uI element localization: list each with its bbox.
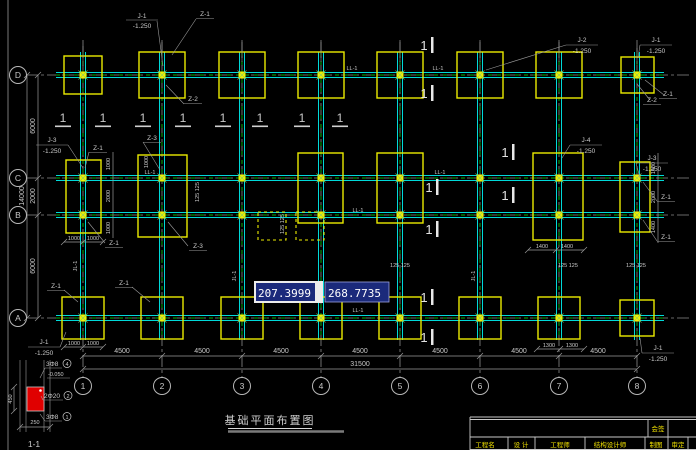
tag-z1: Z-1 <box>51 283 61 290</box>
dim-1300: 1300 <box>543 343 555 349</box>
coordinate-x-value[interactable]: 207.3999 <box>258 287 311 300</box>
dim-bay: 4500 <box>432 348 448 355</box>
title-block-cell: 工程名 <box>475 440 495 449</box>
title-block-cell: 结构设计师 <box>594 440 627 449</box>
tag-j1: J-1 <box>653 345 662 352</box>
mark-one: 1 <box>220 111 227 125</box>
tag-elevation: -1.250 <box>577 148 596 155</box>
tag-jl1: JL-1 <box>73 261 79 272</box>
title-block-cell: 审定 <box>672 440 686 449</box>
dim-1000: 1000 <box>106 158 112 170</box>
axis-col-label: 5 <box>398 381 403 391</box>
tag-j3: J-3 <box>647 155 656 162</box>
dim-1400: 1400 <box>561 244 573 250</box>
axis-col-label: 4 <box>319 381 324 391</box>
mark-one: 1 <box>299 111 306 125</box>
section-one: 1 <box>425 222 432 237</box>
dim-125: 125 125 <box>390 263 410 269</box>
mark-one: 1 <box>257 111 264 125</box>
axis-col-label: 8 <box>635 381 640 391</box>
tag-elevation: -1.250 <box>133 23 152 30</box>
mark-one: 1 <box>180 111 187 125</box>
tag-j1: J-1 <box>651 37 660 44</box>
tag-ll1: LL-1 <box>434 170 445 176</box>
tag-elevation: -1.250 <box>643 166 662 173</box>
tag-ll1: LL-1 <box>432 66 443 72</box>
dim-1000: 1000 <box>87 341 99 347</box>
axis-col-label: 6 <box>478 381 483 391</box>
tag-ll1: LL-1 <box>352 308 363 314</box>
tag-elevation: -1.250 <box>573 48 592 55</box>
tag-elevation: -1.250 <box>647 48 666 55</box>
dim-total-height: 14000 <box>19 186 26 206</box>
dim-span-dc: 6000 <box>30 118 37 134</box>
axis-row-label: B <box>15 210 21 220</box>
detail-item-top: 4 <box>65 362 68 368</box>
title-block-sign: 会签 <box>652 424 666 433</box>
dim-1000: 1000 <box>87 236 99 242</box>
dim-1000: 1000 <box>144 156 150 168</box>
dim-bay: 4500 <box>114 348 130 355</box>
tag-j1: J-1 <box>39 339 48 346</box>
dim-total-width: 31500 <box>350 361 370 368</box>
dim-125: 125 125 <box>626 263 646 269</box>
dim-125: 125 125 <box>280 214 286 234</box>
tag-j1: J-1 <box>137 13 146 20</box>
tag-z1: Z-1 <box>200 11 210 18</box>
mark-one: 1 <box>337 111 344 125</box>
axis-row-label: A <box>15 313 21 323</box>
tag-z3: Z-3 <box>193 243 203 250</box>
axis-col-label: 7 <box>557 381 562 391</box>
dim-1400: 1400 <box>536 244 548 250</box>
dim-1000: 1000 <box>68 341 80 347</box>
coordinate-y-value[interactable]: 268.7735 <box>328 287 381 300</box>
tag-z1: Z-1 <box>661 194 671 201</box>
detail-dim-450: 450 <box>8 394 14 403</box>
tag-jl1: JL-1 <box>232 271 238 282</box>
mark-one: 1 <box>60 111 67 125</box>
tag-z2: Z-2 <box>188 96 198 103</box>
dim-span-ba: 6000 <box>30 258 37 274</box>
section-one: 1 <box>425 180 432 195</box>
drawing-title: 基础平面布置图 <box>225 414 316 427</box>
detail-rebar-mid: 2Φ20 <box>44 393 60 400</box>
axis-row-label: C <box>15 173 21 183</box>
tag-j2: J-2 <box>577 37 586 44</box>
cad-viewport[interactable]: 4500 4500 4500 4500 4500 4500 4500 31500… <box>0 0 696 450</box>
axis-col-label: 3 <box>240 381 245 391</box>
title-block-cell: 设 计 <box>514 440 529 449</box>
dim-bay: 4500 <box>511 348 527 355</box>
axis-row-label: D <box>15 70 21 80</box>
detail-rebar-bottom: 3Φ8 <box>46 414 59 421</box>
tag-j4: J-4 <box>581 137 590 144</box>
tag-z1: Z-1 <box>661 234 671 241</box>
dim-1300: 1300 <box>566 343 578 349</box>
detail-caption: 1-1 <box>28 439 41 449</box>
axis-col-label: 2 <box>160 381 165 391</box>
dim-bay: 4500 <box>194 348 210 355</box>
dim-1000: 1000 <box>106 222 112 234</box>
section-one: 1 <box>420 86 427 101</box>
mark-one: 1 <box>140 111 147 125</box>
detail-dim-250: 250 <box>30 420 39 426</box>
dim-125: 125 125 <box>195 182 201 202</box>
tag-ll1: LL-1 <box>352 208 363 214</box>
tag-z1: Z-1 <box>663 91 673 98</box>
tag-elevation: -1.250 <box>43 148 62 155</box>
section-one: 1 <box>501 145 508 160</box>
detail-item-mid: 2 <box>66 394 69 400</box>
title-block-cell: 制图 <box>650 440 663 449</box>
detail-item-bottom: 1 <box>65 415 68 421</box>
tag-z3: Z-3 <box>147 135 157 142</box>
tag-z1: Z-1 <box>109 240 119 247</box>
dim-125: 125 125 <box>558 263 578 269</box>
section-one: 1 <box>420 330 427 345</box>
axis-col-label: 1 <box>81 381 86 391</box>
tag-ll1: LL-1 <box>346 66 357 72</box>
detail-rebar-top: 3Φ8 <box>46 361 59 368</box>
dim-1400: 1400 <box>651 221 657 233</box>
tag-z2: Z-2 <box>647 97 657 104</box>
mark-one: 1 <box>100 111 107 125</box>
tag-ll1: LL-1 <box>144 170 155 176</box>
section-one: 1 <box>420 290 427 305</box>
tag-z1: Z-1 <box>119 280 129 287</box>
dim-span-cb: 2000 <box>30 188 37 204</box>
detail-elevation: -0.050 <box>48 372 64 378</box>
tag-j3: J-3 <box>47 137 56 144</box>
tag-jl1: JL-1 <box>471 271 477 282</box>
tag-z1: Z-1 <box>93 145 103 152</box>
coordinate-input[interactable]: 207.3999 268.7735 <box>254 281 389 303</box>
dim-bay: 4500 <box>352 348 368 355</box>
title-block-cell: 工程师 <box>550 440 570 449</box>
section-one: 1 <box>420 38 427 53</box>
dim-1000: 1000 <box>68 236 80 242</box>
cad-window: 4500 4500 4500 4500 4500 4500 4500 31500… <box>0 0 696 450</box>
dim-bay: 4500 <box>273 348 289 355</box>
section-one: 1 <box>501 188 508 203</box>
dim-2000: 2000 <box>106 190 112 202</box>
tag-elevation: -1.250 <box>649 356 668 363</box>
dim-bay: 4500 <box>590 348 606 355</box>
tag-elevation: -1.250 <box>35 350 54 357</box>
